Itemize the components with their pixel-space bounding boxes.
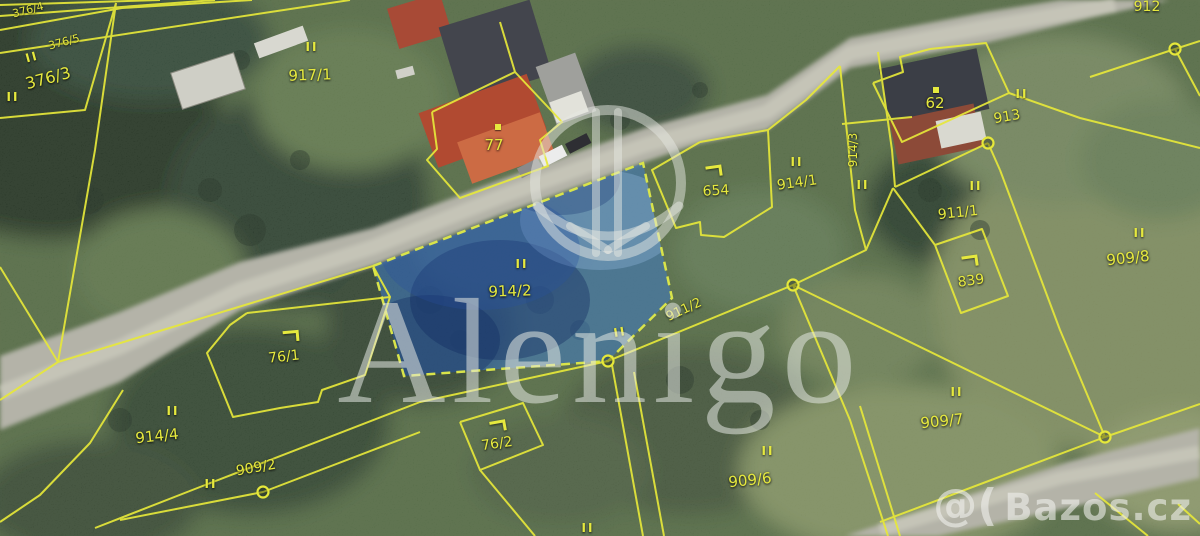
bazos-at-icon: @( <box>933 484 997 528</box>
watermark-bazos: @( Bazos.cz <box>933 484 1192 528</box>
watermark-alenigo-text: Alenigo <box>337 266 862 438</box>
cadastral-map-image[interactable]: 376/4376/5376/3917/177654914/1914/362913… <box>0 0 1200 536</box>
watermark-bazos-text: Bazos.cz <box>1004 489 1192 526</box>
